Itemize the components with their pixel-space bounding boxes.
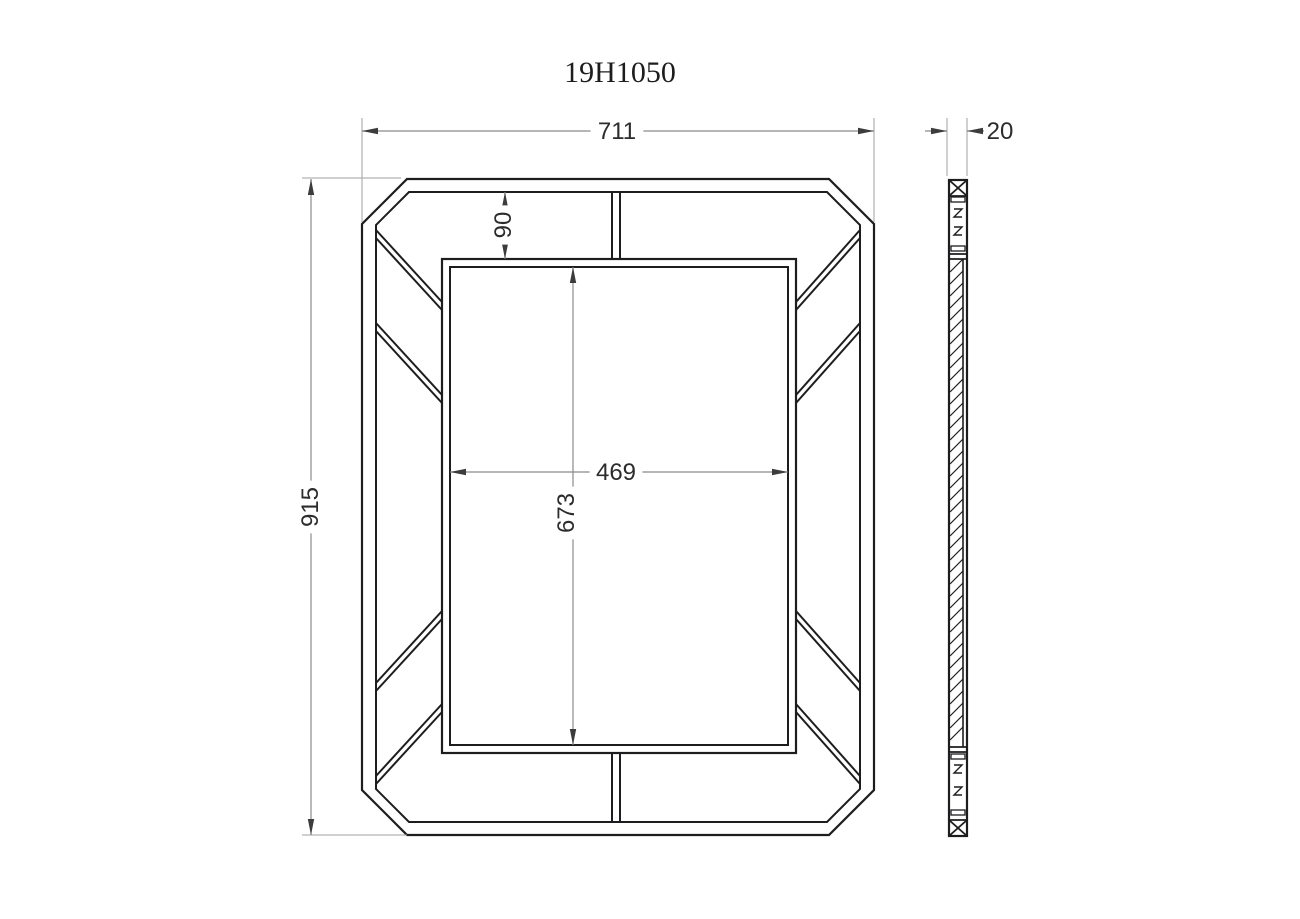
glass-hatch-line [950, 559, 963, 572]
glass-hatch-line [950, 259, 963, 272]
glass-hatch-line [950, 583, 963, 596]
glass-hatch-line [950, 391, 963, 404]
glass-hatch-line [950, 295, 963, 308]
dim-label-mirror-width: 469 [596, 459, 636, 486]
dim-label-mirror-height: 673 [553, 493, 580, 533]
dimension-arrow [570, 729, 576, 745]
technical-drawing-page: 19H10507119159046967320 [0, 0, 1300, 919]
dim-label-thickness: 20 [987, 118, 1014, 145]
mirror-outer-edge [442, 259, 796, 753]
frame-outer-outline [362, 179, 874, 835]
frame-strut [376, 238, 442, 310]
glass-hatch-line [950, 727, 963, 740]
glass-hatch-line [950, 667, 963, 680]
frame-strut [376, 619, 442, 691]
glass-hatch-line [950, 511, 963, 524]
glass-hatch-line [950, 631, 963, 644]
frame-strut [796, 619, 860, 691]
glass-hatch-line [950, 307, 963, 320]
tenon-mark [951, 754, 965, 759]
dim-label-top-inset: 90 [490, 212, 517, 239]
glass-hatch-line [950, 523, 963, 536]
dimension-arrow [308, 819, 314, 835]
glass-hatch-line [950, 655, 963, 668]
glass-hatch-line [950, 475, 963, 488]
glass-hatch-line [950, 487, 963, 500]
mirror-inner-edge [450, 267, 788, 745]
dimension-arrow [362, 128, 378, 134]
dimension-arrow [858, 128, 874, 134]
frame-strut [796, 712, 860, 784]
wood-grain-mark [954, 209, 962, 217]
glass-hatch-line [950, 283, 963, 296]
frame-strut [376, 331, 442, 403]
glass-hatch-line [950, 607, 963, 620]
glass-hatch-line [950, 715, 963, 728]
dimension-arrow [502, 243, 508, 259]
glass-hatch-line [950, 463, 963, 476]
dimension-arrow [570, 267, 576, 283]
glass-hatch-line [950, 535, 963, 548]
dimension-arrow [308, 179, 314, 195]
glass-hatch-line [950, 271, 963, 284]
frame-strut [796, 611, 860, 683]
dimension-arrow [967, 128, 983, 134]
wood-grain-mark [954, 227, 962, 235]
glass-hatch-line [950, 691, 963, 704]
glass-hatch-line [950, 547, 963, 560]
glass-hatch-line [950, 439, 963, 452]
frame-strut [376, 712, 442, 784]
dimension-arrow [931, 128, 947, 134]
glass-hatch-line [950, 703, 963, 716]
glass-hatch-line [950, 571, 963, 584]
frame-strut [376, 230, 442, 302]
drawing-title: 19H1050 [564, 56, 676, 89]
wood-grain-mark [954, 765, 962, 773]
frame-strut [796, 331, 860, 403]
glass-hatch-line [950, 379, 963, 392]
tenon-mark [951, 246, 965, 251]
glass-hatch-line [950, 595, 963, 608]
glass-hatch-line [950, 619, 963, 632]
dimension-arrow [772, 469, 788, 475]
glass-hatch-line [950, 403, 963, 416]
wood-grain-mark [954, 787, 962, 795]
frame-strut [796, 230, 860, 302]
tenon-mark [951, 810, 965, 815]
dim-label-frame-height: 915 [297, 487, 324, 527]
glass-hatch-line [950, 355, 963, 368]
frame-strut [376, 704, 442, 776]
glass-hatch-line [950, 319, 963, 332]
tenon-mark [951, 197, 965, 202]
frame-strut [376, 323, 442, 395]
glass-hatch-line [950, 331, 963, 344]
frame-strut [796, 238, 860, 310]
glass-hatch-line [950, 679, 963, 692]
glass-hatch-line [950, 451, 963, 464]
frame-strut [376, 611, 442, 683]
glass-hatch-line [950, 343, 963, 356]
glass-hatch-line [950, 367, 963, 380]
frame-strut [796, 704, 860, 776]
glass-hatch-line [950, 499, 963, 512]
glass-hatch-line [950, 643, 963, 656]
glass-hatch-line [950, 427, 963, 440]
dim-label-frame-width: 711 [598, 118, 636, 145]
dimension-arrow [450, 469, 466, 475]
cad-drawing: 19H10507119159046967320 [0, 0, 1300, 919]
glass-hatch-line [950, 415, 963, 428]
frame-strut [796, 323, 860, 395]
